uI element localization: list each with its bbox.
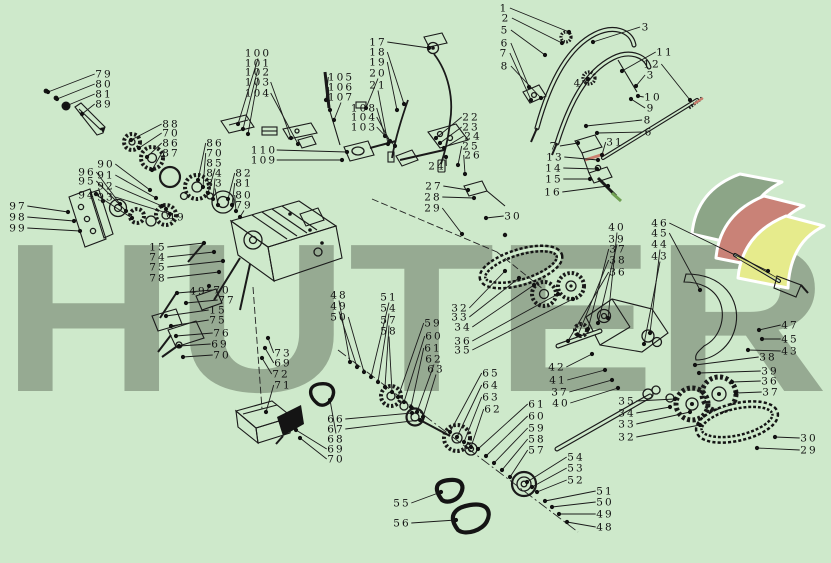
part-callout-59: 59 (424, 318, 442, 330)
leader-dot (442, 146, 446, 150)
part-callout-61: 61 (528, 399, 546, 411)
leader-dot (201, 185, 205, 189)
part-callout-30: 30 (800, 433, 818, 445)
leader-dot (427, 46, 431, 50)
leader-dot (260, 356, 264, 360)
leader-dot (396, 395, 400, 399)
leader-dot (393, 144, 397, 148)
leader-dot (448, 430, 452, 434)
part-callout-87: 87 (162, 148, 180, 160)
part-callout-64: 64 (482, 380, 500, 392)
part-callout-71: 71 (274, 380, 292, 392)
leader-dot (688, 410, 692, 414)
part-callout-43: 43 (781, 346, 799, 358)
leader-dot (145, 155, 149, 159)
leader-dot (264, 410, 268, 414)
leader-dot (55, 97, 59, 101)
part-callout-65: 65 (482, 368, 500, 380)
leader-dot (688, 98, 692, 102)
part-callout-35: 35 (454, 345, 472, 357)
leader-dot (460, 232, 464, 236)
leader-dot (196, 178, 200, 182)
leader-dot (266, 336, 270, 340)
leader-dot (596, 158, 600, 162)
leader-dot (698, 288, 702, 292)
leader-dot (462, 440, 466, 444)
leader-dot (340, 158, 344, 162)
leader-dot (148, 188, 152, 192)
part-callout-36: 36 (609, 267, 627, 279)
leader-dot (543, 53, 547, 57)
leader-dot (606, 316, 610, 320)
leader-dot (529, 98, 533, 102)
leader-dot (332, 118, 336, 122)
leader-dot (636, 94, 640, 98)
part-callout-4: 4 (574, 78, 583, 90)
part-callout-103: 103 (351, 122, 377, 134)
part-callout-41: 41 (549, 375, 567, 387)
leader-dot (402, 400, 406, 404)
part-callout-78: 78 (149, 273, 167, 285)
leader-dot (484, 454, 488, 458)
part-callout-52: 52 (567, 475, 585, 487)
leader-dot (539, 96, 543, 100)
leader-dot (567, 30, 571, 34)
leader-dot (746, 348, 750, 352)
part-callout-49: 49 (189, 286, 207, 298)
part-callout-2: 2 (502, 13, 511, 25)
leader-dot (206, 191, 210, 195)
leader-dot (211, 197, 215, 201)
leader-dot (760, 337, 764, 341)
part-callout-11: 11 (656, 47, 674, 59)
part-callout-95: 95 (78, 176, 96, 188)
part-callout-32: 32 (618, 432, 636, 444)
leader-dot (348, 360, 352, 364)
part-callout-37: 37 (762, 387, 780, 399)
leader-dot (773, 435, 777, 439)
leader-dot (455, 435, 459, 439)
part-callout-7: 7 (500, 48, 509, 60)
leader-dot (610, 378, 614, 382)
part-callout-81: 81 (235, 178, 253, 190)
part-callout-79: 79 (235, 200, 253, 212)
leader-dot (484, 216, 488, 220)
leader-dot (169, 324, 173, 328)
part-callout-63: 63 (427, 364, 445, 376)
leader-dot (620, 69, 624, 73)
part-callout-53: 53 (567, 463, 585, 475)
leader-dot (129, 138, 133, 142)
part-callout-58: 58 (380, 326, 398, 338)
leader-dot (697, 371, 701, 375)
leader-dot (503, 269, 507, 273)
leader-dot (150, 168, 154, 172)
part-callout-93: 93 (97, 192, 115, 204)
leader-dot (386, 142, 390, 146)
leader-dot (454, 518, 458, 522)
leader-dot (241, 127, 245, 131)
leader-dot (584, 124, 588, 128)
leader-dot (668, 405, 672, 409)
leader-dot (634, 84, 638, 88)
leader-dot (226, 197, 230, 201)
leader-dot (415, 410, 419, 414)
part-callout-50: 50 (330, 312, 348, 324)
leader-dot (586, 77, 590, 81)
leader-dot (164, 314, 168, 318)
part-callout-49: 49 (596, 509, 614, 521)
part-callout-16: 16 (544, 187, 562, 199)
leader-dot (345, 150, 349, 154)
leader-dot (606, 184, 610, 188)
part-callout-21: 21 (369, 80, 387, 92)
part-callout-70: 70 (327, 454, 345, 466)
part-callout-43: 43 (651, 251, 669, 263)
leader-dot (294, 428, 298, 432)
leader-dot (390, 390, 394, 394)
part-callout-29: 29 (800, 445, 818, 457)
leader-dot (557, 512, 561, 516)
leader-dot (476, 447, 480, 451)
part-callout-75: 75 (209, 315, 227, 327)
leader-dot (565, 520, 569, 524)
leader-dot (409, 405, 413, 409)
leader-dot (642, 342, 646, 346)
part-callout-8: 8 (501, 61, 510, 73)
part-callout-34: 34 (454, 322, 472, 334)
part-callout-45: 45 (781, 334, 799, 346)
part-callout-20: 20 (369, 68, 387, 80)
leader-dot (693, 363, 697, 367)
leader-dot (216, 203, 220, 207)
leader-dot (517, 276, 521, 280)
part-callout-70: 70 (213, 350, 231, 362)
part-callout-6: 6 (645, 127, 654, 139)
leader-dot (78, 229, 82, 233)
leader-dot (439, 490, 443, 494)
leader-dot (46, 90, 50, 94)
leader-dot (698, 423, 702, 427)
leader-dot (438, 141, 442, 145)
leader-dot (648, 331, 652, 335)
parts-diagram-svg: HUTER (0, 0, 831, 563)
leader-dot (289, 136, 293, 140)
leader-dot (72, 219, 76, 223)
leader-dot (383, 385, 387, 389)
leader-dot (560, 41, 564, 45)
part-callout-99: 99 (9, 223, 27, 235)
leader-dot (298, 436, 302, 440)
part-callout-26: 26 (464, 150, 482, 162)
leader-dot (263, 346, 267, 350)
leader-dot (535, 490, 539, 494)
leader-dot (80, 112, 84, 116)
part-callout-40: 40 (608, 222, 626, 234)
leader-dot (328, 398, 332, 402)
part-callout-47: 47 (781, 320, 799, 332)
leader-dot (456, 163, 460, 167)
leader-dot (184, 301, 188, 305)
leader-dot (421, 415, 425, 419)
part-callout-60: 60 (425, 331, 443, 343)
part-callout-8: 8 (644, 115, 653, 127)
part-callout-9: 9 (647, 103, 656, 115)
part-callout-44: 44 (651, 239, 669, 251)
leader-dot (207, 284, 211, 288)
leader-dot (369, 375, 373, 379)
part-callout-54: 54 (380, 303, 398, 315)
part-callout-33: 33 (618, 419, 636, 431)
part-callout-29: 29 (424, 203, 442, 215)
leader-dot (362, 370, 366, 374)
part-callout-30: 30 (504, 211, 522, 223)
leader-dot (757, 328, 761, 332)
leader-dot (212, 250, 216, 254)
leader-dot (469, 445, 473, 449)
leader-dot (154, 196, 158, 200)
leader-dot (543, 499, 547, 503)
part-callout-49: 49 (168, 212, 186, 224)
leader-dot (532, 283, 536, 287)
part-callout-38: 38 (609, 255, 627, 267)
leader-dot (202, 241, 206, 245)
leader-dot (221, 259, 225, 263)
leader-dot (434, 136, 438, 140)
leader-dot (590, 352, 594, 356)
part-callout-48: 48 (596, 522, 614, 534)
leader-dot (595, 167, 599, 171)
leader-dot (550, 505, 554, 509)
part-callout-109: 109 (251, 155, 277, 167)
part-callout-3: 3 (642, 22, 651, 34)
leader-dot (500, 468, 504, 472)
leader-dot (217, 270, 221, 274)
leader-dot (595, 131, 599, 135)
part-callout-42: 42 (548, 362, 566, 374)
leader-dot (588, 177, 592, 181)
part-callout-38: 38 (759, 352, 777, 364)
leader-dot (492, 461, 496, 465)
leader-dot (525, 480, 529, 484)
part-callout-55: 55 (393, 498, 411, 510)
leader-dot (160, 204, 164, 208)
leader-dot (734, 391, 738, 395)
part-callout-50: 50 (596, 497, 614, 509)
leader-dot (586, 327, 590, 331)
leader-dot (410, 411, 414, 415)
leader-dot (181, 355, 185, 359)
leader-dot (603, 368, 607, 372)
part-callout-60: 60 (528, 411, 546, 423)
leader-dot (591, 40, 595, 44)
leader-dot (164, 207, 168, 211)
leader-dot (673, 397, 677, 401)
leader-dot (508, 475, 512, 479)
part-callout-15: 15 (545, 174, 563, 186)
leader-dot (766, 269, 770, 273)
part-callout-56: 56 (393, 518, 411, 530)
leader-dot (230, 203, 234, 207)
part-callout-83: 83 (206, 178, 224, 190)
leader-dot (444, 155, 448, 159)
leader-dot (177, 344, 181, 348)
leader-dot (755, 446, 759, 450)
leader-dot (600, 153, 604, 157)
leader-dot (175, 291, 179, 295)
leader-dot (174, 334, 178, 338)
leader-dot (629, 97, 633, 101)
leader-dot (566, 339, 570, 343)
leader-dot (472, 196, 476, 200)
leader-dot (130, 216, 134, 220)
leader-dot (238, 215, 242, 219)
leader-dot (530, 485, 534, 489)
leader-dot (376, 380, 380, 384)
leader-dot (576, 141, 580, 145)
leader-dot (236, 122, 240, 126)
leader-dot (296, 142, 300, 146)
leader-dot (402, 102, 406, 106)
part-callout-5: 5 (501, 25, 510, 37)
part-callout-24: 24 (428, 161, 446, 173)
leader-dot (328, 108, 332, 112)
part-callout-3: 3 (647, 70, 656, 82)
leader-dot (124, 209, 128, 213)
leader-dot (556, 292, 560, 296)
diagram-stage: HUTER (0, 0, 831, 563)
leader-dot (466, 188, 470, 192)
leader-dot (576, 333, 580, 337)
part-callout-94: 94 (78, 190, 96, 202)
part-callout-63: 63 (482, 392, 500, 404)
part-callout-62: 62 (484, 404, 502, 416)
leader-dot (246, 132, 250, 136)
leader-dot (463, 172, 467, 176)
part-callout-35: 35 (618, 396, 636, 408)
leader-dot (137, 146, 141, 150)
leader-dot (730, 380, 734, 384)
leader-dot (64, 104, 68, 108)
part-callout-57: 57 (528, 445, 546, 457)
leader-dot (571, 297, 575, 301)
part-callout-89: 89 (95, 99, 113, 111)
leader-dot (616, 386, 620, 390)
leader-dot (418, 418, 422, 422)
leader-dot (596, 321, 600, 325)
leader-dot (355, 365, 359, 369)
leader-dot (66, 210, 70, 214)
part-callout-31: 31 (606, 137, 624, 149)
part-callout-40: 40 (552, 398, 570, 410)
leader-dot (395, 108, 399, 112)
part-callout-104: 104 (245, 88, 271, 100)
